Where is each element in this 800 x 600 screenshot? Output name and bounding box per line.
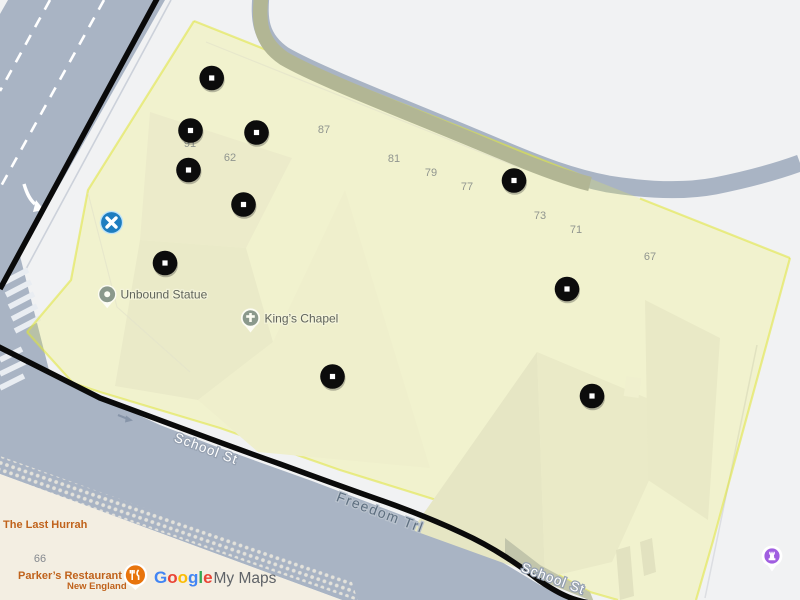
svg-text:79: 79 (425, 167, 437, 179)
svg-text:87: 87 (318, 124, 330, 136)
svg-text:81: 81 (388, 153, 400, 165)
svg-text:The Last Hurrah: The Last Hurrah (3, 519, 88, 531)
svg-text:73: 73 (534, 210, 546, 222)
svg-text:New England: New England (67, 581, 127, 592)
svg-text:71: 71 (570, 224, 582, 236)
svg-text:Google: Google (154, 568, 213, 587)
svg-text:My Maps: My Maps (214, 570, 277, 587)
svg-text:62: 62 (224, 152, 236, 164)
svg-text:Unbound Statue: Unbound Statue (121, 288, 208, 302)
svg-text:67: 67 (644, 251, 656, 263)
svg-text:77: 77 (461, 181, 473, 193)
svg-text:King’s Chapel: King’s Chapel (265, 312, 339, 326)
svg-text:66: 66 (34, 553, 46, 565)
